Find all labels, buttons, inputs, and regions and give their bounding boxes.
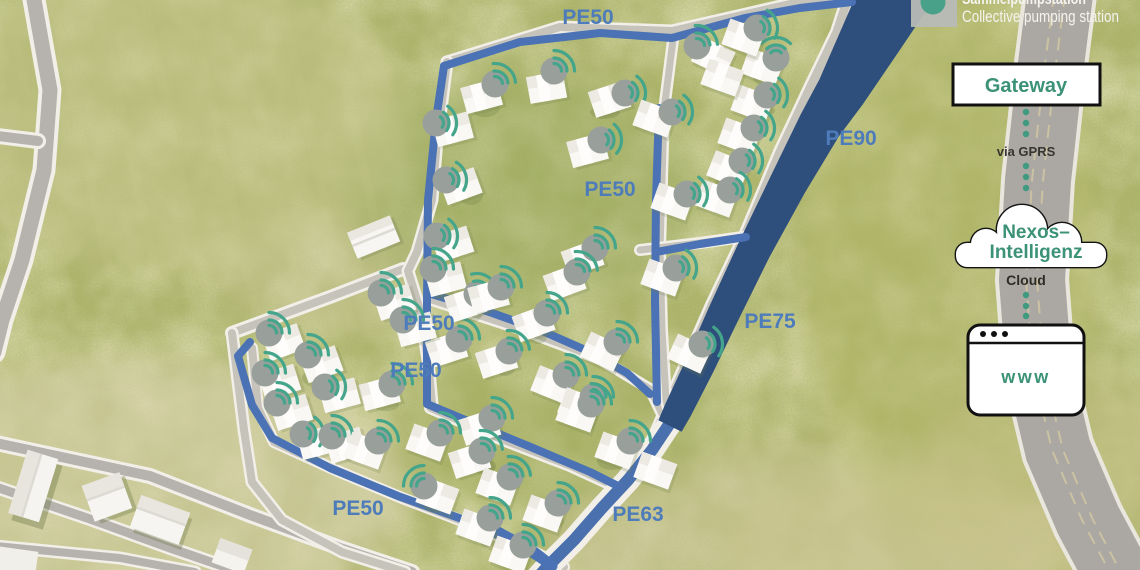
svg-text:PE50: PE50 [584,178,635,201]
svg-text:Collective pumping station: Collective pumping station [962,8,1119,26]
svg-text:PE50: PE50 [390,359,441,382]
svg-text:PE50: PE50 [562,6,613,29]
svg-text:www: www [1000,367,1051,387]
svg-text:Cloud: Cloud [1006,272,1046,288]
svg-text:PE90: PE90 [825,127,876,150]
svg-text:Gateway: Gateway [985,75,1068,97]
svg-text:Intelligenz: Intelligenz [990,242,1083,263]
svg-text:PE75: PE75 [744,310,796,333]
svg-text:PE50: PE50 [403,312,454,335]
svg-text:PE63: PE63 [612,503,663,526]
svg-text:via GPRS: via GPRS [997,144,1056,159]
svg-text:Nexos–: Nexos– [1002,222,1070,243]
svg-text:Sammelpumpstation: Sammelpumpstation [962,0,1086,8]
svg-text:PE50: PE50 [332,497,383,520]
